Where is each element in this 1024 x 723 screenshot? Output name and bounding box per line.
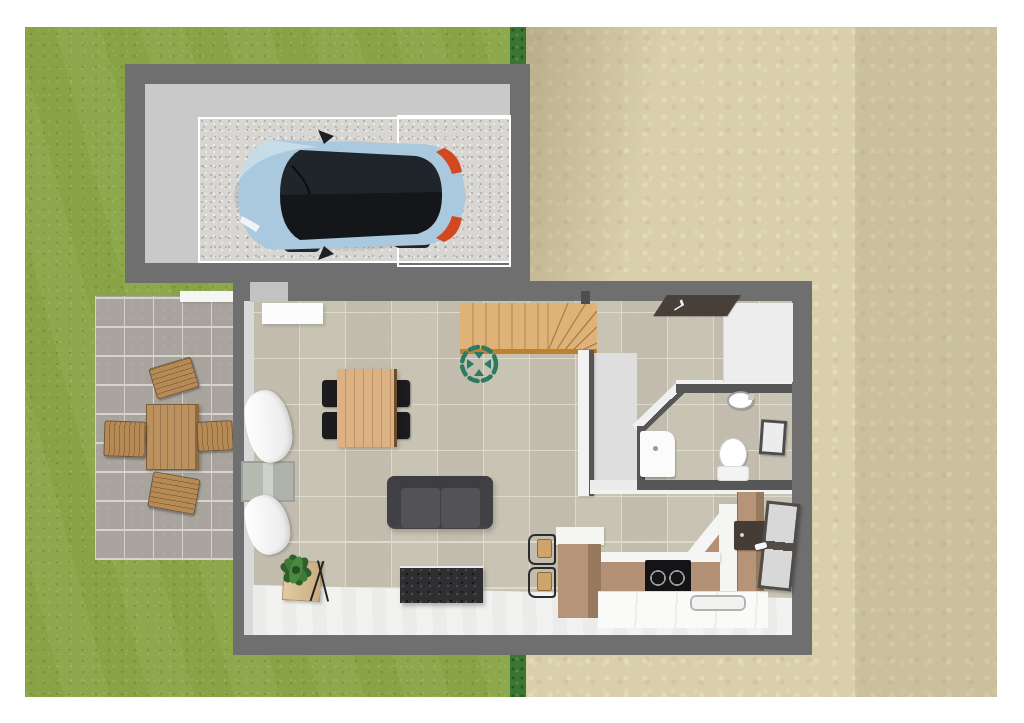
dining-table[interactable] [337, 369, 397, 447]
understair-bottom-wall [590, 480, 637, 490]
stool-seat [537, 539, 552, 558]
car-roof-sheen [280, 150, 442, 195]
floor-plan-canvas [0, 0, 1024, 723]
stair-partition-wall [578, 350, 594, 496]
outdoor-table[interactable] [146, 404, 199, 470]
white-sideboard[interactable] [262, 303, 323, 324]
sofa-cushion [400, 487, 441, 529]
bar-stool-1[interactable] [528, 534, 556, 565]
door-handle [754, 542, 767, 551]
outdoor-chair-east[interactable] [196, 420, 234, 452]
cabinet-knob [740, 533, 744, 537]
sofa[interactable] [387, 476, 493, 529]
car[interactable] [226, 128, 472, 262]
kitchen-island-top [556, 527, 604, 545]
entry-floor [723, 303, 793, 382]
bathroom-vanity[interactable] [640, 431, 675, 477]
garage-doorway[interactable] [250, 282, 288, 302]
tv-cabinet[interactable] [400, 566, 483, 603]
stair-newel-post [581, 291, 590, 304]
washbasin-tap [748, 394, 754, 400]
sand-dark-band [855, 27, 997, 697]
entry-doormat[interactable] [653, 295, 741, 316]
doormat-chevron-icon [673, 299, 684, 310]
bathroom-mirror[interactable] [759, 419, 787, 456]
patio-planter-strip [180, 291, 235, 302]
outdoor-chair-west[interactable] [103, 420, 146, 457]
kitchen-sink[interactable] [690, 595, 746, 611]
bar-stool-2[interactable] [528, 567, 556, 598]
sofa-arm [480, 479, 493, 527]
sofa-arm [387, 479, 400, 527]
bathroom-bottom-wall [637, 480, 792, 490]
understair-floor [593, 353, 637, 480]
camera-compass-marker[interactable] [457, 342, 501, 386]
sofa-cushion [440, 487, 481, 529]
kitchen-sink-counter [598, 592, 768, 628]
kitchen-island[interactable] [558, 544, 601, 618]
stool-seat [537, 572, 552, 591]
toilet-tank [717, 466, 749, 481]
vanity-faucet [653, 446, 658, 451]
